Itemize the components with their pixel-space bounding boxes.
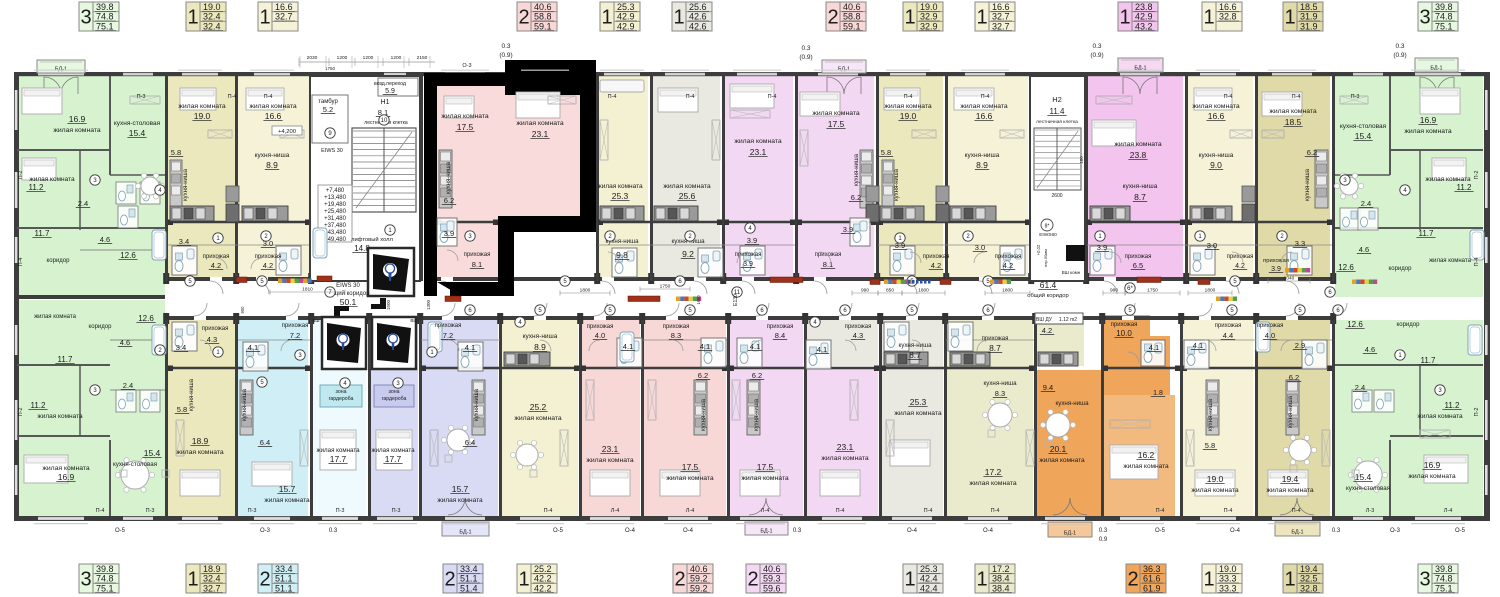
svg-text:6.2: 6.2 <box>444 196 454 205</box>
svg-text:59.2: 59.2 <box>690 583 708 593</box>
svg-text:кухня-ниша: кухня-ниша <box>754 398 760 431</box>
svg-text:32.5: 32.5 <box>1300 574 1318 584</box>
svg-text:О-5: О-5 <box>1455 528 1466 534</box>
svg-text:1750: 1750 <box>325 66 336 71</box>
svg-text:кухня-ниша: кухня-ниша <box>1123 183 1158 190</box>
svg-text:12.6: 12.6 <box>138 314 154 323</box>
svg-text:19.0: 19.0 <box>203 2 221 12</box>
svg-text:жилая комната: жилая комната <box>597 183 643 190</box>
svg-text:32.7: 32.7 <box>275 12 293 22</box>
svg-text:жилая комната: жилая комната <box>884 103 932 110</box>
svg-text:кухня-ниша: кухня-ниша <box>965 152 1000 159</box>
svg-text:кухня-ниша: кухня-ниша <box>1055 400 1089 407</box>
svg-text:жилая комната: жилая комната <box>514 415 562 422</box>
svg-text:1800: 1800 <box>1205 288 1216 294</box>
svg-text:EIWS60: EIWS60 <box>1039 232 1057 238</box>
svg-text:жилая комната: жилая комната <box>666 475 714 482</box>
svg-text:5.8: 5.8 <box>177 405 187 414</box>
svg-text:23.8: 23.8 <box>1135 2 1153 12</box>
svg-text:БД-1: БД-1 <box>459 530 471 536</box>
svg-text:коридор: коридор <box>1389 266 1413 272</box>
svg-text:17.2: 17.2 <box>985 467 1002 477</box>
svg-text:74.8: 74.8 <box>96 574 114 584</box>
svg-text:прихожая: прихожая <box>1257 323 1284 329</box>
svg-text:15.7: 15.7 <box>452 484 469 494</box>
svg-text:33.4: 33.4 <box>460 564 478 574</box>
svg-text:1: 1 <box>601 7 612 29</box>
svg-text:общий коридор: общий коридор <box>1027 292 1069 299</box>
svg-text:П-3: П-3 <box>1351 94 1360 100</box>
svg-text:59.2: 59.2 <box>690 574 708 584</box>
svg-text:19.0: 19.0 <box>1207 474 1224 484</box>
svg-text:38.4: 38.4 <box>992 574 1010 584</box>
svg-text:4.3: 4.3 <box>853 331 863 340</box>
svg-text:П-4: П-4 <box>991 508 1000 514</box>
svg-text:жилая комната: жилая комната <box>1417 413 1463 420</box>
svg-text:4.2: 4.2 <box>1235 263 1245 270</box>
svg-text:жилая комната: жилая комната <box>741 475 789 482</box>
svg-text:П-2: П-2 <box>18 408 24 417</box>
svg-text:кухня-ниша: кухня-ниша <box>255 152 290 159</box>
svg-text:8.4: 8.4 <box>775 331 785 340</box>
svg-text:18.5: 18.5 <box>1285 117 1302 127</box>
svg-text:1810: 1810 <box>302 287 313 293</box>
svg-text:кухня-столовая: кухня-столовая <box>1346 485 1390 492</box>
svg-text:кухня-ниша: кухня-ниша <box>1288 395 1294 428</box>
svg-text:1: 1 <box>976 7 987 29</box>
svg-text:2.4: 2.4 <box>1361 199 1371 208</box>
svg-text:4.3: 4.3 <box>207 335 217 344</box>
svg-text:Л-4: Л-4 <box>686 508 695 514</box>
svg-text:+19,480: +19,480 <box>324 202 347 208</box>
svg-text:1: 1 <box>1119 7 1130 29</box>
svg-text:6.4: 6.4 <box>260 438 270 447</box>
svg-text:6.2: 6.2 <box>851 193 861 202</box>
svg-text:8.7: 8.7 <box>989 343 1001 353</box>
svg-text:16.6: 16.6 <box>265 111 282 121</box>
svg-text:жилая комната: жилая комната <box>969 480 1017 487</box>
svg-text:1200: 1200 <box>337 55 348 61</box>
svg-text:31.9: 31.9 <box>1300 21 1318 31</box>
svg-text:0.3: 0.3 <box>801 45 810 52</box>
svg-text:1: 1 <box>1284 7 1295 29</box>
svg-text:11.2: 11.2 <box>29 183 45 192</box>
svg-text:6.2: 6.2 <box>1289 373 1299 382</box>
svg-text:кухня-ниша: кухня-ниша <box>854 153 860 186</box>
svg-text:2600: 2600 <box>1051 193 1062 199</box>
svg-text:прихожая: прихожая <box>587 324 614 330</box>
svg-text:жилая комната: жилая комната <box>1123 463 1169 470</box>
svg-text:4.4: 4.4 <box>1223 331 1233 340</box>
svg-text:коридор: коридор <box>1397 322 1421 328</box>
svg-text:коридор: коридор <box>47 258 71 264</box>
svg-text:42.2: 42.2 <box>534 574 552 584</box>
svg-text:жилая комната: жилая комната <box>1429 258 1471 264</box>
svg-text:17.2: 17.2 <box>992 564 1010 574</box>
svg-text:17.5: 17.5 <box>828 119 845 129</box>
svg-text:1: 1 <box>976 569 987 591</box>
svg-text:4.1: 4.1 <box>700 342 710 351</box>
svg-text:П-4: П-4 <box>924 508 933 514</box>
svg-text:42.4: 42.4 <box>920 574 938 584</box>
svg-text:1: 1 <box>518 569 529 591</box>
svg-text:17.7: 17.7 <box>385 454 402 464</box>
svg-text:4.2: 4.2 <box>211 261 221 270</box>
svg-text:П-3: П-3 <box>137 94 146 100</box>
svg-text:16.9: 16.9 <box>1420 115 1437 125</box>
svg-text:58.8: 58.8 <box>534 12 552 22</box>
svg-text:74.8: 74.8 <box>96 12 114 22</box>
svg-text:гардероба: гардероба <box>329 396 354 402</box>
svg-text:П-3: П-3 <box>392 508 401 514</box>
svg-text:2.9: 2.9 <box>1295 341 1305 350</box>
svg-text:32.4: 32.4 <box>203 12 221 22</box>
svg-text:П-4: П-4 <box>768 94 777 100</box>
svg-text:(0.9): (0.9) <box>799 54 812 61</box>
svg-text:25.6: 25.6 <box>679 191 696 201</box>
svg-text:жилая комната: жилая комната <box>812 110 860 117</box>
svg-text:жилая комната: жилая комната <box>1266 487 1314 494</box>
svg-text:кухня-ниша: кухня-ниша <box>983 380 1017 387</box>
svg-text:О-4: О-4 <box>907 528 918 534</box>
svg-text:1300: 1300 <box>426 299 431 310</box>
svg-text:4.0: 4.0 <box>595 331 605 340</box>
svg-text:3: 3 <box>1419 7 1430 29</box>
svg-text:3.4: 3.4 <box>179 237 189 246</box>
svg-text:1: 1 <box>673 7 684 29</box>
svg-text:900: 900 <box>240 306 245 314</box>
svg-text:74.8: 74.8 <box>1435 574 1453 584</box>
svg-text:4.2: 4.2 <box>931 261 941 270</box>
svg-text:жилая комната: жилая комната <box>37 413 83 420</box>
svg-text:1: 1 <box>1203 7 1214 29</box>
svg-text:прихожая: прихожая <box>1215 323 1242 329</box>
svg-text:2150: 2150 <box>417 55 428 61</box>
svg-text:П-4: П-4 <box>686 94 695 100</box>
svg-text:жилая комната: жилая комната <box>1192 103 1240 110</box>
svg-text:П-4: П-4 <box>264 94 273 100</box>
svg-text:П-2: П-2 <box>18 171 24 180</box>
svg-text:жилая комната: жилая комната <box>894 410 942 417</box>
svg-text:42.6: 42.6 <box>689 12 707 22</box>
svg-text:П-4: П-4 <box>904 94 913 100</box>
svg-text:11.2: 11.2 <box>1445 401 1461 410</box>
svg-text:8.7: 8.7 <box>909 350 921 360</box>
svg-text:3.9: 3.9 <box>843 225 853 234</box>
svg-text:19.4: 19.4 <box>1282 474 1299 484</box>
svg-text:31.9: 31.9 <box>1300 12 1318 22</box>
svg-text:11.7: 11.7 <box>1421 356 1437 365</box>
svg-text:59.1: 59.1 <box>534 21 552 31</box>
svg-text:3.4: 3.4 <box>176 343 186 352</box>
svg-text:18.9: 18.9 <box>192 436 209 446</box>
svg-text:П-4: П-4 <box>1474 258 1480 267</box>
svg-text:61.6: 61.6 <box>1143 574 1161 584</box>
svg-text:2: 2 <box>747 569 758 591</box>
svg-text:8.9: 8.9 <box>534 342 546 352</box>
svg-text:40.6: 40.6 <box>843 2 861 12</box>
svg-text:ВШ: ВШ <box>312 318 319 323</box>
svg-text:3: 3 <box>1419 569 1430 591</box>
svg-text:жилая комната: жилая комната <box>734 138 782 145</box>
svg-text:жилая комната: жилая комната <box>821 455 869 462</box>
svg-text:19.0: 19.0 <box>194 111 211 121</box>
svg-text:11.2: 11.2 <box>31 401 47 410</box>
svg-text:+31,480: +31,480 <box>324 216 347 222</box>
svg-text:жилая комната: жилая комната <box>53 127 101 134</box>
svg-text:11.4: 11.4 <box>1050 107 1066 116</box>
svg-text:11.2: 11.2 <box>1457 183 1473 192</box>
svg-text:0.3: 0.3 <box>329 528 338 534</box>
svg-text:прихожая: прихожая <box>203 254 230 260</box>
svg-text:жилая комната: жилая комната <box>178 103 226 110</box>
svg-text:0.3: 0.3 <box>1395 43 1404 50</box>
svg-text:59.1: 59.1 <box>843 21 861 31</box>
svg-text:33.4: 33.4 <box>275 564 293 574</box>
svg-text:лифтовый холл: лифтовый холл <box>351 236 393 243</box>
svg-text:4.6: 4.6 <box>100 235 110 244</box>
svg-text:18.5: 18.5 <box>1300 2 1318 12</box>
svg-text:кухня-ниша: кухня-ниша <box>446 161 452 194</box>
svg-text:3: 3 <box>80 569 91 591</box>
svg-text:2: 2 <box>259 569 270 591</box>
svg-text:прихожая: прихожая <box>663 324 690 330</box>
svg-text:39.8: 39.8 <box>96 2 114 12</box>
svg-text:жилая комната: жилая комната <box>249 103 297 110</box>
svg-text:5.2: 5.2 <box>323 105 333 114</box>
svg-text:33.3: 33.3 <box>1219 583 1237 593</box>
svg-text:16.6: 16.6 <box>275 2 293 12</box>
svg-text:кухня-ниша: кухня-ниша <box>701 398 707 431</box>
svg-text:кухня-ниша: кухня-ниша <box>183 168 189 201</box>
svg-text:4.2: 4.2 <box>1003 261 1013 270</box>
svg-text:1: 1 <box>1284 569 1295 591</box>
svg-text:О-4: О-4 <box>625 528 636 534</box>
svg-text:4.1: 4.1 <box>465 343 475 352</box>
svg-text:75.1: 75.1 <box>1435 583 1453 593</box>
svg-text:6.4: 6.4 <box>465 438 475 447</box>
svg-text:жилая комната: жилая комната <box>586 457 634 464</box>
svg-text:П-3: П-3 <box>146 508 155 514</box>
svg-text:19.4: 19.4 <box>1300 564 1318 574</box>
svg-text:42.9: 42.9 <box>617 12 635 22</box>
svg-text:59.6: 59.6 <box>763 583 781 593</box>
svg-text:32.4: 32.4 <box>203 21 221 31</box>
svg-text:25.2: 25.2 <box>530 402 547 412</box>
svg-text:42.2: 42.2 <box>534 583 552 593</box>
svg-text:40.6: 40.6 <box>690 564 708 574</box>
svg-text:2: 2 <box>827 7 838 29</box>
svg-text:+4,200: +4,200 <box>278 129 296 135</box>
svg-text:EIWS 30: EIWS 30 <box>321 148 343 154</box>
svg-text:жилая комната: жилая комната <box>1425 176 1471 183</box>
svg-text:990: 990 <box>861 288 869 294</box>
svg-text:16.6: 16.6 <box>1219 2 1237 12</box>
svg-text:8.3: 8.3 <box>671 331 681 340</box>
svg-text:23.1: 23.1 <box>837 442 854 452</box>
svg-text:9.2: 9.2 <box>682 249 694 259</box>
svg-text:О-4: О-4 <box>983 528 994 534</box>
svg-text:180: 180 <box>1079 156 1084 164</box>
svg-text:1: 1 <box>904 7 915 29</box>
svg-text:6*: 6* <box>1127 286 1133 292</box>
svg-text:15.7: 15.7 <box>279 484 296 494</box>
svg-text:Л-4: Л-4 <box>611 508 620 514</box>
svg-text:П-3: П-3 <box>336 508 345 514</box>
svg-text:0.3: 0.3 <box>793 528 802 534</box>
svg-text:15.4: 15.4 <box>144 448 161 458</box>
svg-text:1: 1 <box>259 7 270 29</box>
svg-text:П-4: П-4 <box>1292 94 1301 100</box>
svg-text:5.8: 5.8 <box>881 148 891 157</box>
svg-text:кухня-ниша: кухня-ниша <box>898 342 932 349</box>
svg-text:жилая комната: жилая комната <box>29 176 75 183</box>
svg-text:16.6: 16.6 <box>992 2 1010 12</box>
svg-text:51.1: 51.1 <box>275 583 293 593</box>
svg-text:прихожая: прихожая <box>1227 254 1254 260</box>
svg-text:1800: 1800 <box>918 288 929 294</box>
svg-text:8.3: 8.3 <box>995 389 1005 398</box>
svg-text:прихожая: прихожая <box>995 254 1022 260</box>
svg-text:гардероба: гардероба <box>382 396 407 402</box>
svg-text:51.1: 51.1 <box>460 574 478 584</box>
svg-text:32.9: 32.9 <box>920 21 938 31</box>
svg-text:Н2: Н2 <box>1052 95 1062 104</box>
svg-text:23.8: 23.8 <box>1130 150 1147 160</box>
svg-text:П-4: П-4 <box>1292 508 1301 514</box>
svg-text:жилая комната: жилая комната <box>1408 473 1456 480</box>
svg-text:возд.переход: возд.переход <box>374 81 406 87</box>
svg-text:1.8: 1.8 <box>1153 390 1163 397</box>
svg-text:4.1: 4.1 <box>817 345 827 354</box>
svg-text:1: 1 <box>187 7 198 29</box>
svg-text:32.8: 32.8 <box>1300 583 1318 593</box>
svg-text:17.5: 17.5 <box>457 122 474 132</box>
svg-text:+7,480: +7,480 <box>326 188 345 194</box>
svg-text:кухня-ниша: кухня-ниша <box>242 388 248 421</box>
svg-text:3.0: 3.0 <box>975 243 985 252</box>
svg-text:4.6: 4.6 <box>120 338 130 347</box>
svg-text:прихожая: прихожая <box>282 323 309 329</box>
svg-text:40.6: 40.6 <box>534 2 552 12</box>
svg-text:зона: зона <box>336 389 347 395</box>
svg-text:Е130: Е130 <box>733 294 739 306</box>
svg-text:6.2: 6.2 <box>698 371 708 380</box>
svg-text:+37,480: +37,480 <box>324 223 347 229</box>
svg-text:12.6: 12.6 <box>120 251 136 260</box>
svg-text:5.9: 5.9 <box>385 88 395 95</box>
svg-text:зона: зона <box>389 389 400 395</box>
svg-text:8.9: 8.9 <box>976 160 988 170</box>
svg-text:59.3: 59.3 <box>763 574 781 584</box>
svg-text:15.4: 15.4 <box>1355 472 1372 482</box>
svg-text:16.9: 16.9 <box>58 472 75 482</box>
svg-text:850: 850 <box>886 288 894 294</box>
svg-text:кухня-столовая: кухня-столовая <box>114 120 161 127</box>
svg-text:(0.9): (0.9) <box>1090 52 1103 59</box>
svg-text:4.1: 4.1 <box>248 343 258 352</box>
svg-text:кухня-столовая: кухня-столовая <box>1340 123 1387 130</box>
svg-text:О-5: О-5 <box>553 528 564 534</box>
svg-text:EIWS 30: EIWS 30 <box>336 283 360 289</box>
svg-text:42.4: 42.4 <box>920 583 938 593</box>
svg-text:П-4: П-4 <box>608 94 617 100</box>
svg-text:жилая комната: жилая комната <box>1114 141 1162 148</box>
svg-text:2.4: 2.4 <box>123 381 133 390</box>
svg-text:19.0: 19.0 <box>900 111 917 121</box>
svg-text:жилая комната: жилая комната <box>516 120 564 127</box>
svg-text:П-4: П-4 <box>981 94 990 100</box>
svg-text:16.6: 16.6 <box>1208 111 1225 121</box>
svg-text:23.1: 23.1 <box>602 444 619 454</box>
svg-text:3.9: 3.9 <box>743 261 753 268</box>
svg-text:0.3: 0.3 <box>501 43 510 50</box>
svg-text:8.1: 8.1 <box>472 260 482 269</box>
svg-text:(0.9): (0.9) <box>1393 52 1406 59</box>
svg-text:61.4: 61.4 <box>1040 280 1057 290</box>
svg-text:+13,480: +13,480 <box>324 195 347 201</box>
svg-text:1200: 1200 <box>363 55 374 61</box>
svg-text:прихожая: прихожая <box>923 254 950 260</box>
svg-text:О-5: О-5 <box>1155 528 1166 534</box>
svg-text:П-4: П-4 <box>18 258 24 267</box>
svg-text:БД-1: БД-1 <box>838 67 850 73</box>
svg-text:32.4: 32.4 <box>203 574 221 584</box>
svg-text:19.0: 19.0 <box>1219 564 1237 574</box>
svg-text:БД-1: БД-1 <box>1291 530 1303 536</box>
svg-text:4.0: 4.0 <box>1265 331 1275 340</box>
svg-text:25.3: 25.3 <box>617 2 635 12</box>
svg-text:прихожая: прихожая <box>1263 258 1289 264</box>
svg-text:6.5: 6.5 <box>1133 261 1143 270</box>
svg-text:23.1: 23.1 <box>532 129 549 139</box>
svg-text:0.3: 0.3 <box>1099 528 1108 534</box>
svg-text:жилая комната: жилая комната <box>176 449 224 456</box>
svg-text:39.8: 39.8 <box>96 564 114 574</box>
svg-text:32.7: 32.7 <box>992 21 1010 31</box>
svg-text:11.7: 11.7 <box>1419 229 1435 238</box>
svg-text:25.2: 25.2 <box>534 564 552 574</box>
svg-text:прихожая: прихожая <box>464 252 491 258</box>
svg-text:П-4: П-4 <box>1156 508 1165 514</box>
svg-text:Л-3: Л-3 <box>1366 508 1375 514</box>
svg-text:10: 10 <box>381 118 388 124</box>
svg-text:10.0: 10.0 <box>1116 329 1132 338</box>
svg-text:25.3: 25.3 <box>612 191 629 201</box>
svg-text:4.2: 4.2 <box>1042 326 1052 335</box>
svg-text:75.1: 75.1 <box>1435 21 1453 31</box>
svg-text:жилая комната: жилая комната <box>441 113 489 120</box>
svg-text:лестничная клетка: лестничная клетка <box>1036 120 1078 125</box>
svg-text:16.6: 16.6 <box>976 111 993 121</box>
svg-text:38.4: 38.4 <box>992 583 1010 593</box>
svg-text:жилая комната: жилая комната <box>42 465 90 472</box>
svg-text:42.9: 42.9 <box>1135 12 1153 22</box>
svg-text:7.2: 7.2 <box>290 331 300 340</box>
svg-text:3.9: 3.9 <box>1097 243 1107 252</box>
svg-text:П-4: П-4 <box>1224 94 1233 100</box>
svg-text:8.9: 8.9 <box>266 160 278 170</box>
svg-text:4.2: 4.2 <box>263 261 273 270</box>
svg-text:жилая комната: жилая комната <box>264 497 310 504</box>
svg-text:ВШ ДУ: ВШ ДУ <box>1036 317 1053 323</box>
svg-text:25.3: 25.3 <box>910 397 927 407</box>
svg-text:61.9: 61.9 <box>1143 583 1161 593</box>
svg-text:2.4: 2.4 <box>1355 383 1365 392</box>
svg-text:П-2: П-2 <box>1474 171 1480 180</box>
svg-text:жилая комната: жилая комната <box>316 447 360 454</box>
svg-text:4.6: 4.6 <box>1359 245 1369 254</box>
